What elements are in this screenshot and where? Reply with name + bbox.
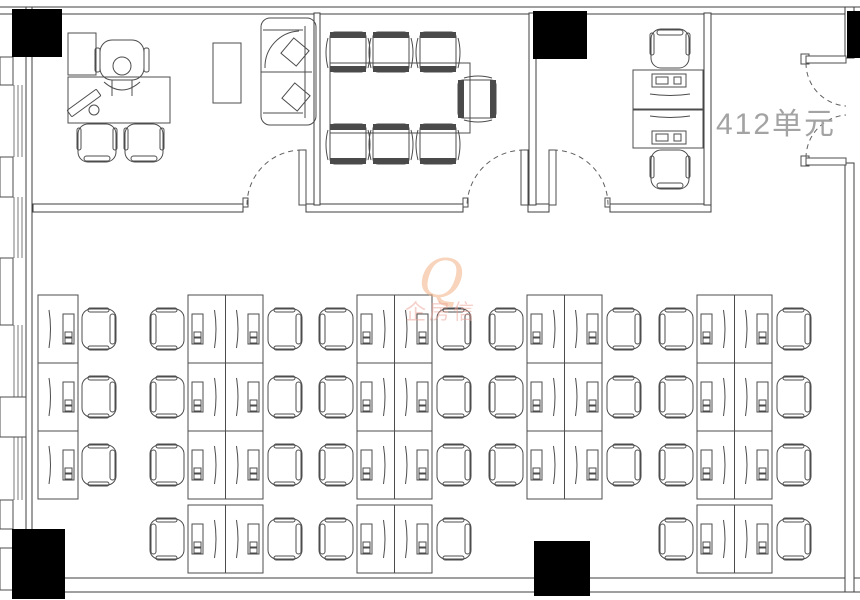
desk-panel bbox=[237, 378, 239, 416]
monitor-icon bbox=[419, 406, 426, 411]
workstation-desk bbox=[226, 431, 264, 499]
monitor-icon bbox=[250, 474, 257, 479]
office-chair bbox=[320, 314, 325, 344]
monitor-icon bbox=[250, 400, 257, 405]
bottom-wall bbox=[16, 578, 860, 592]
office-chair bbox=[490, 450, 495, 480]
desk-panel bbox=[554, 446, 556, 484]
desk-panel bbox=[406, 520, 408, 558]
monitor-icon bbox=[363, 406, 370, 411]
workstation-desk bbox=[633, 70, 703, 109]
monitor-icon bbox=[589, 338, 596, 343]
desk-panel bbox=[49, 310, 51, 348]
side-table bbox=[213, 43, 241, 103]
monitor-icon bbox=[759, 474, 766, 479]
desk-panel bbox=[650, 94, 690, 96]
monitor-icon bbox=[194, 548, 201, 553]
office-chair bbox=[660, 450, 665, 480]
monitor-icon bbox=[652, 74, 686, 87]
office-chair bbox=[320, 382, 325, 412]
monitor-icon bbox=[533, 406, 540, 411]
monitor-icon bbox=[194, 338, 201, 343]
left-wall bbox=[26, 7, 32, 592]
column bbox=[847, 11, 860, 58]
workstation-desk bbox=[527, 363, 565, 431]
monitor-icon bbox=[759, 468, 766, 473]
window-pier bbox=[0, 57, 13, 85]
office-chair bbox=[151, 314, 156, 344]
monitor-icon bbox=[194, 332, 201, 337]
office-chair bbox=[296, 314, 301, 344]
monitor-icon bbox=[194, 542, 201, 547]
office-chair bbox=[110, 382, 115, 412]
desk-panel bbox=[724, 446, 726, 484]
office-chair bbox=[660, 314, 665, 344]
workstation-desk bbox=[357, 505, 395, 573]
office-chair bbox=[805, 450, 810, 480]
office-chair bbox=[805, 314, 810, 344]
staff-room-door bbox=[549, 150, 608, 205]
workstation-desk bbox=[395, 431, 433, 499]
monitor-icon bbox=[363, 474, 370, 479]
workstation-desk bbox=[357, 295, 395, 363]
office-door bbox=[247, 150, 306, 205]
desk-panel bbox=[406, 310, 408, 348]
office-chair bbox=[805, 524, 810, 554]
office-chair bbox=[151, 524, 156, 554]
right-wall-lower bbox=[845, 163, 854, 592]
workstation-desk bbox=[697, 295, 735, 363]
desk-panel bbox=[215, 310, 217, 348]
office-chair bbox=[650, 150, 690, 189]
window-pier bbox=[0, 397, 26, 437]
workstation-desk bbox=[188, 505, 226, 573]
interior-walls bbox=[33, 13, 711, 212]
office-chair bbox=[151, 450, 156, 480]
monitor-icon bbox=[65, 406, 72, 411]
floor-plan-drawing bbox=[0, 0, 860, 600]
monitor-icon bbox=[65, 468, 72, 473]
workstation-desk bbox=[188, 431, 226, 499]
column bbox=[12, 9, 62, 57]
window-pier bbox=[0, 500, 13, 529]
monitor-icon bbox=[419, 338, 426, 343]
office-meeting-wall bbox=[314, 13, 320, 205]
office-chair bbox=[635, 314, 640, 344]
monitor-icon bbox=[65, 332, 72, 337]
workstation-desk bbox=[735, 505, 773, 573]
office-chair bbox=[660, 524, 665, 554]
workstation-desk bbox=[735, 431, 773, 499]
workstation-desk bbox=[697, 431, 735, 499]
workstation-desk bbox=[38, 295, 78, 363]
window-pier bbox=[0, 258, 13, 325]
desk-panel bbox=[576, 446, 578, 484]
desk-panel bbox=[384, 310, 386, 348]
monitor-icon bbox=[250, 338, 257, 343]
monitor-icon bbox=[759, 542, 766, 547]
office-chair bbox=[465, 450, 470, 480]
office-chair bbox=[320, 524, 325, 554]
meeting-chair bbox=[416, 124, 460, 164]
unit-label: 412单元 bbox=[716, 99, 860, 143]
guest-chair bbox=[124, 124, 164, 162]
office-chair bbox=[465, 382, 470, 412]
staff-corridor-wall bbox=[704, 13, 711, 205]
partition-wall bbox=[610, 204, 711, 212]
column bbox=[533, 11, 587, 59]
monitor-icon bbox=[589, 468, 596, 473]
desk-panel bbox=[746, 310, 748, 348]
meeting-chair bbox=[458, 76, 496, 122]
monitor-icon bbox=[419, 468, 426, 473]
office-chair bbox=[320, 450, 325, 480]
monitor-icon bbox=[703, 400, 710, 405]
monitor-icon bbox=[194, 400, 201, 405]
workstation-desk bbox=[188, 295, 226, 363]
office-chair bbox=[151, 382, 156, 412]
office-chair bbox=[805, 382, 810, 412]
workstation-desk bbox=[226, 363, 264, 431]
top-wall bbox=[0, 7, 860, 14]
desk-panel bbox=[384, 378, 386, 416]
column bbox=[12, 529, 65, 599]
window-pier bbox=[0, 548, 13, 590]
monitor-icon bbox=[589, 406, 596, 411]
monitor-icon bbox=[703, 338, 710, 343]
monitor-icon bbox=[759, 332, 766, 337]
partition-wall bbox=[33, 204, 243, 212]
structural-columns bbox=[12, 9, 860, 599]
desk-panel bbox=[650, 116, 690, 118]
monitor-icon bbox=[363, 548, 370, 553]
monitor-icon bbox=[419, 332, 426, 337]
office-chair bbox=[296, 382, 301, 412]
workstation-desk bbox=[357, 363, 395, 431]
meeting-chair bbox=[326, 32, 370, 72]
monitor-icon bbox=[759, 338, 766, 343]
monitor-icon bbox=[533, 400, 540, 405]
monitor-icon bbox=[589, 332, 596, 337]
desk-panel bbox=[576, 378, 578, 416]
desk-panel bbox=[724, 310, 726, 348]
monitor-icon bbox=[419, 542, 426, 547]
desk-panel bbox=[384, 446, 386, 484]
desk-panel bbox=[49, 378, 51, 416]
desk-panel bbox=[724, 520, 726, 558]
workstation-desk bbox=[38, 363, 78, 431]
desk-panel bbox=[237, 520, 239, 558]
office-chair bbox=[296, 524, 301, 554]
desk-panel bbox=[576, 310, 578, 348]
monitor-icon bbox=[652, 131, 686, 144]
office-chair bbox=[110, 314, 115, 344]
monitor-icon bbox=[363, 542, 370, 547]
desk-panel bbox=[746, 446, 748, 484]
workstation-desk bbox=[226, 505, 264, 573]
monitor-icon bbox=[363, 400, 370, 405]
open-plan-workstations bbox=[38, 295, 811, 573]
workstation-desk bbox=[735, 295, 773, 363]
workstation-desk bbox=[188, 363, 226, 431]
office-chair bbox=[660, 382, 665, 412]
office-chair bbox=[635, 382, 640, 412]
keyboard-icon bbox=[67, 89, 101, 117]
executive-chair bbox=[95, 40, 149, 80]
monitor-icon bbox=[363, 332, 370, 337]
monitor-icon bbox=[363, 468, 370, 473]
office-chair bbox=[296, 450, 301, 480]
desk-panel bbox=[724, 378, 726, 416]
workstation-desk bbox=[565, 363, 603, 431]
exterior-walls bbox=[0, 7, 860, 592]
partition-wall bbox=[306, 204, 463, 212]
office-chair bbox=[650, 29, 690, 68]
meeting-chair bbox=[416, 32, 460, 72]
desk-panel bbox=[215, 520, 217, 558]
cabinet bbox=[68, 33, 96, 75]
workstation-desk bbox=[395, 295, 433, 363]
monitor-icon bbox=[419, 548, 426, 553]
staff-room-furniture bbox=[633, 29, 703, 189]
office-chair bbox=[635, 450, 640, 480]
desk-panel bbox=[237, 446, 239, 484]
meeting-room-furniture bbox=[326, 32, 496, 164]
workstation-desk bbox=[395, 505, 433, 573]
sofa bbox=[261, 18, 316, 125]
meeting-chair bbox=[326, 124, 370, 164]
monitor-icon bbox=[250, 332, 257, 337]
floor-plan: 412单元 Q 企房信 bbox=[0, 0, 860, 600]
desk-panel bbox=[384, 520, 386, 558]
office-chair bbox=[490, 382, 495, 412]
sofa-pillow bbox=[282, 83, 310, 111]
office-chair bbox=[465, 524, 470, 554]
monitor-icon bbox=[703, 468, 710, 473]
monitor-icon bbox=[533, 338, 540, 343]
desk-panel bbox=[746, 378, 748, 416]
monitor-icon bbox=[194, 468, 201, 473]
monitor-icon bbox=[194, 474, 201, 479]
monitor-icon bbox=[703, 542, 710, 547]
monitor-icon bbox=[250, 406, 257, 411]
monitor-icon bbox=[65, 338, 72, 343]
monitor-icon bbox=[759, 548, 766, 553]
desk-panel bbox=[406, 446, 408, 484]
desk-panel bbox=[406, 378, 408, 416]
meeting-chair bbox=[369, 32, 413, 72]
desk-panel bbox=[554, 310, 556, 348]
workstation-desk bbox=[697, 363, 735, 431]
workstation-desk bbox=[565, 431, 603, 499]
workstation-desk bbox=[226, 295, 264, 363]
office-chair bbox=[490, 314, 495, 344]
monitor-icon bbox=[419, 474, 426, 479]
workstation-desk bbox=[527, 295, 565, 363]
desk-panel bbox=[237, 310, 239, 348]
monitor-icon bbox=[250, 468, 257, 473]
monitor-icon bbox=[65, 474, 72, 479]
monitor-icon bbox=[703, 332, 710, 337]
monitor-icon bbox=[533, 474, 540, 479]
monitor-icon bbox=[194, 406, 201, 411]
workstation-desk bbox=[735, 363, 773, 431]
guest-chair bbox=[77, 124, 117, 162]
monitor-icon bbox=[703, 474, 710, 479]
monitor-icon bbox=[65, 400, 72, 405]
monitor-icon bbox=[419, 400, 426, 405]
meeting-table bbox=[330, 63, 470, 133]
meeting-chair bbox=[369, 124, 413, 164]
desk-panel bbox=[215, 446, 217, 484]
executive-desk bbox=[68, 77, 170, 123]
workstation-desk bbox=[395, 363, 433, 431]
left-window-wall bbox=[0, 20, 26, 590]
meeting-room-door bbox=[467, 150, 528, 205]
window-pier bbox=[0, 157, 13, 197]
workstation-desk bbox=[697, 505, 735, 573]
monitor-icon bbox=[533, 332, 540, 337]
workstation-desk bbox=[38, 431, 78, 499]
column bbox=[534, 541, 590, 596]
monitor-icon bbox=[250, 548, 257, 553]
office-chair bbox=[465, 314, 470, 344]
monitor-icon bbox=[703, 406, 710, 411]
monitor-icon bbox=[363, 338, 370, 343]
monitor-icon bbox=[759, 406, 766, 411]
workstation-desk bbox=[527, 431, 565, 499]
workstation-desk bbox=[357, 431, 395, 499]
desk-panel bbox=[215, 378, 217, 416]
monitor-icon bbox=[703, 548, 710, 553]
desk-panel bbox=[746, 520, 748, 558]
monitor-icon bbox=[250, 542, 257, 547]
workstation-desk bbox=[565, 295, 603, 363]
desk-panel bbox=[554, 378, 556, 416]
workstation-desk bbox=[633, 110, 703, 148]
monitor-icon bbox=[533, 468, 540, 473]
monitor-icon bbox=[759, 400, 766, 405]
monitor-icon bbox=[589, 400, 596, 405]
office-chair bbox=[110, 450, 115, 480]
monitor-icon bbox=[589, 474, 596, 479]
desk-panel bbox=[49, 446, 51, 484]
manager-office-furniture bbox=[67, 18, 316, 162]
